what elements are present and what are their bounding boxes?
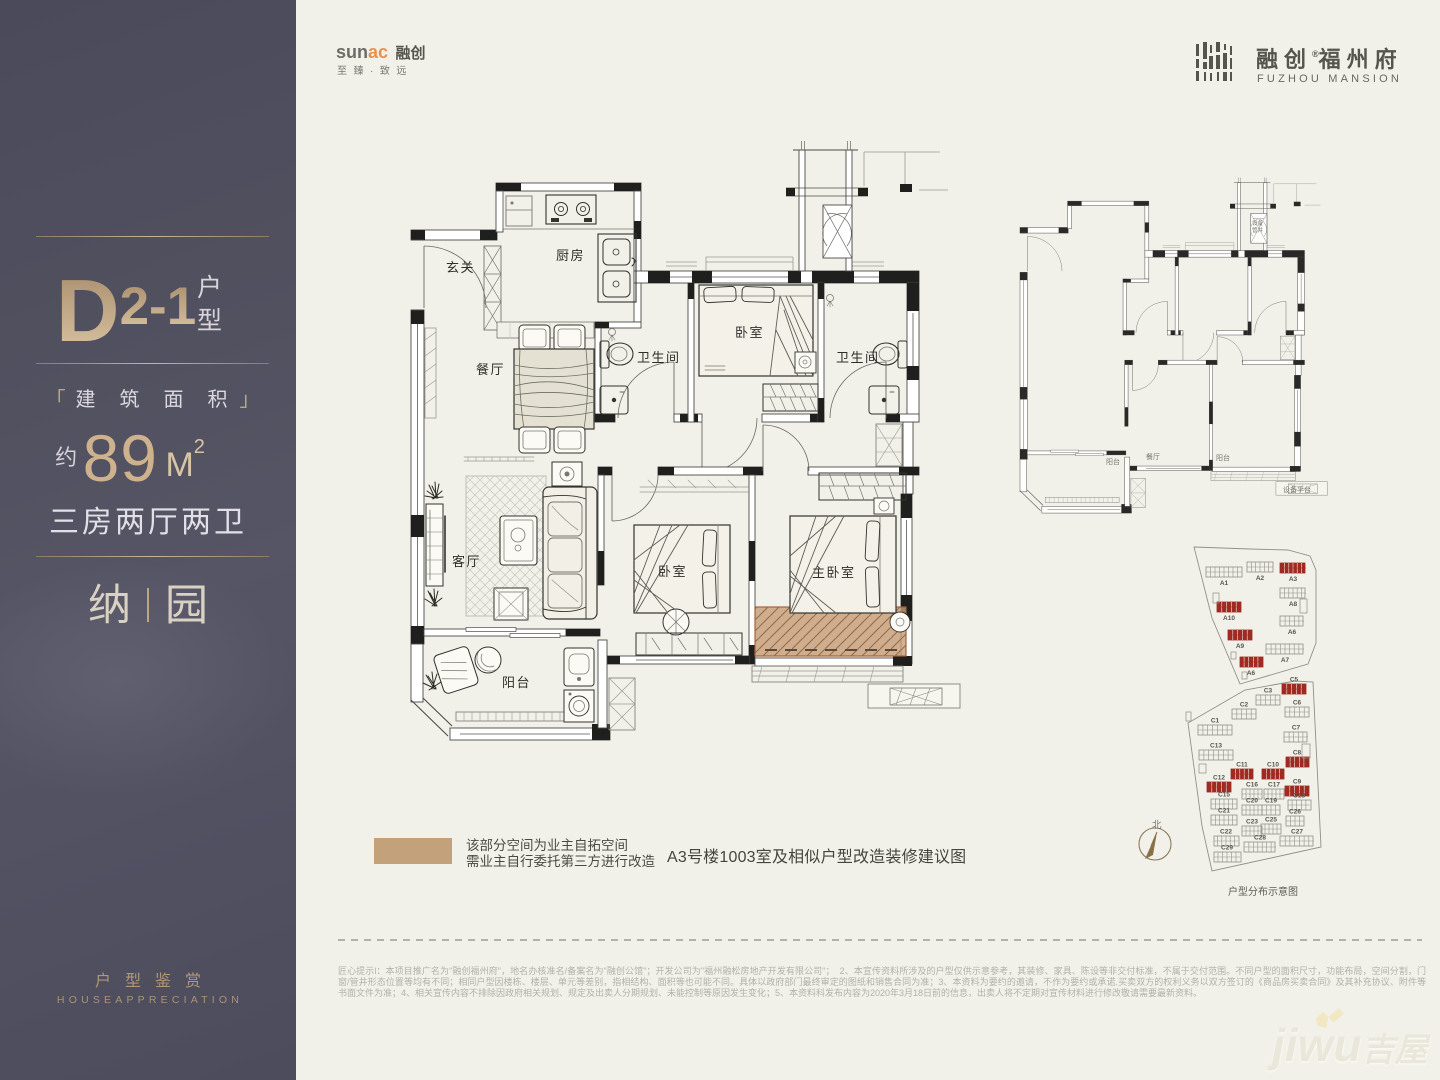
svg-text:C12: C12 [1213,775,1225,782]
svg-text:A6: A6 [1247,670,1256,677]
svg-text:C17: C17 [1268,782,1280,789]
svg-text:餐厅: 餐厅 [476,362,505,377]
svg-text:阳台: 阳台 [502,675,531,690]
svg-text:阳台: 阳台 [1106,457,1120,466]
svg-text:C19: C19 [1265,798,1277,805]
svg-text:设备: 设备 [1252,219,1264,227]
svg-text:C29: C29 [1221,845,1233,852]
svg-text:A2: A2 [1256,575,1265,582]
svg-text:厨房: 厨房 [556,248,585,263]
svg-text:主卧室: 主卧室 [812,565,856,580]
svg-text:管井: 管井 [1252,226,1264,234]
svg-text:C13: C13 [1210,743,1222,750]
svg-text:C3: C3 [1264,688,1273,695]
svg-text:C7: C7 [1292,725,1301,732]
svg-text:C10: C10 [1267,762,1279,769]
svg-text:C6: C6 [1293,700,1302,707]
svg-text:C5: C5 [1290,677,1299,684]
svg-text:阳台: 阳台 [1216,453,1230,462]
svg-text:C9: C9 [1293,779,1302,786]
svg-text:C18: C18 [1293,793,1305,800]
svg-text:C1: C1 [1211,718,1220,725]
svg-text:卧室: 卧室 [735,325,764,340]
svg-text:A8: A8 [1289,601,1298,608]
svg-text:C27: C27 [1291,829,1303,836]
svg-text:设备平台: 设备平台 [1283,485,1311,494]
svg-text:A9: A9 [1236,643,1245,650]
svg-text:A1: A1 [1220,580,1229,587]
svg-text:卫生间: 卫生间 [637,350,681,365]
svg-text:C8: C8 [1293,750,1302,757]
svg-text:A3: A3 [1289,576,1298,583]
svg-text:C25: C25 [1265,817,1277,824]
svg-text:餐厅: 餐厅 [1146,452,1160,461]
svg-text:C15: C15 [1218,792,1230,799]
svg-text:卧室: 卧室 [658,564,687,579]
svg-text:C26: C26 [1289,809,1301,816]
svg-text:C23: C23 [1246,819,1258,826]
svg-text:C2: C2 [1240,702,1249,709]
svg-text:C11: C11 [1236,762,1248,769]
svg-text:A10: A10 [1223,615,1235,622]
svg-text:C28: C28 [1254,835,1266,842]
svg-text:C22: C22 [1220,829,1232,836]
svg-text:A7: A7 [1281,657,1290,664]
svg-text:C20: C20 [1246,798,1258,805]
svg-text:C16: C16 [1246,782,1258,789]
svg-text:北: 北 [1152,820,1162,831]
svg-text:卫生间: 卫生间 [836,350,880,365]
svg-text:客厅: 客厅 [452,554,481,569]
svg-text:玄关: 玄关 [446,260,475,275]
svg-text:C21: C21 [1218,808,1230,815]
svg-text:A6: A6 [1288,629,1297,636]
